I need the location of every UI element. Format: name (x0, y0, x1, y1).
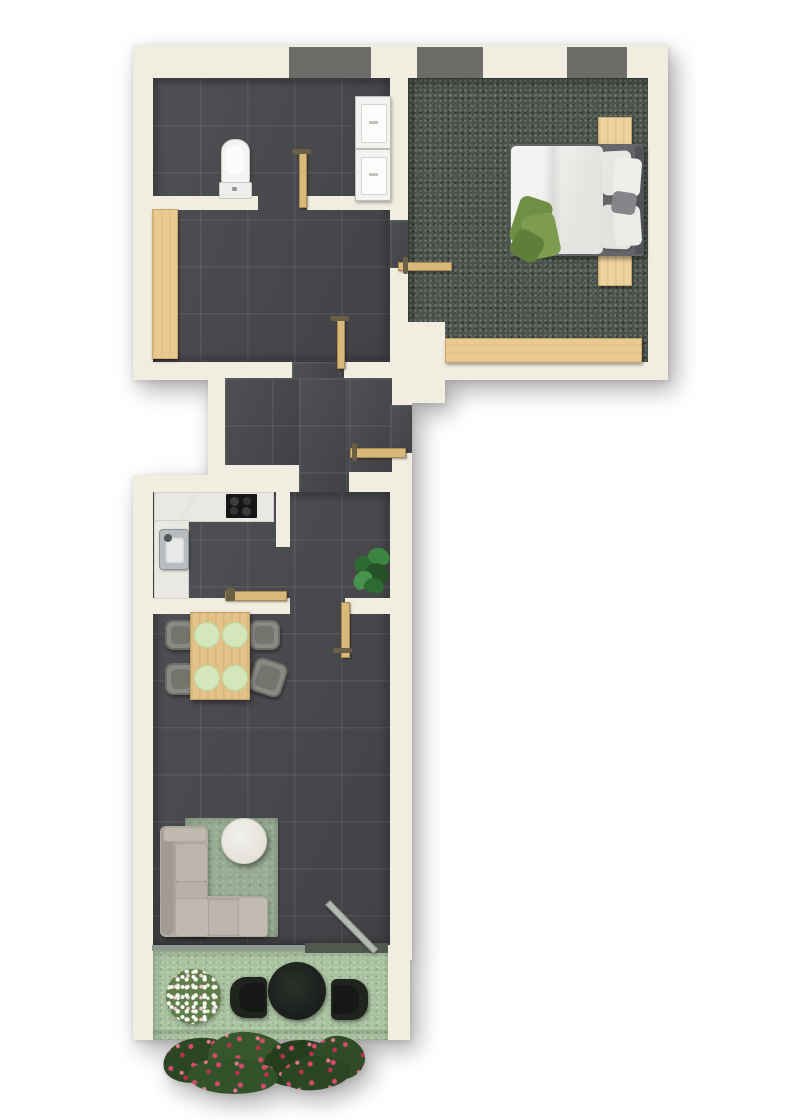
chair-seat (255, 626, 274, 644)
toilet-flush-button (232, 187, 237, 191)
sofa-cushion (208, 899, 239, 936)
hallway-door-handle (330, 316, 349, 321)
dining-wall-right (345, 598, 412, 614)
chair-seat (171, 669, 190, 689)
sofa-corner-cushion (175, 898, 209, 937)
chair-seat (239, 983, 265, 1012)
kitchen-door-handle (226, 588, 235, 601)
outdoor-chair-right (331, 979, 368, 1020)
kitchen-wall-stub (276, 492, 290, 547)
corridor-floor-left (225, 378, 299, 465)
burner (243, 497, 251, 505)
sofa-armrest (163, 827, 207, 842)
faucet (164, 534, 172, 542)
dryer-lid (361, 157, 387, 195)
outdoor-table (268, 962, 326, 1020)
coffee-table (221, 818, 267, 864)
floor-plan-canvas (0, 0, 800, 1120)
hallway-wardrobe (152, 209, 178, 359)
kitchen-sink (159, 529, 189, 570)
dryer-latch (369, 173, 378, 176)
burner (242, 507, 251, 516)
flower-hedge (163, 1032, 367, 1098)
bedroom-wall-step (408, 322, 445, 403)
place-setting (194, 622, 220, 648)
burner (230, 507, 238, 515)
dining-chair (249, 620, 280, 650)
double-bed (510, 144, 644, 256)
place-setting (222, 665, 248, 691)
bathroom-door-leaf (299, 152, 307, 208)
sofa-backrest (161, 827, 174, 935)
window-bedroom-left (417, 47, 483, 78)
washer-latch (369, 121, 378, 124)
corridor-floor-center (299, 378, 349, 495)
living-room-door-handle (333, 648, 352, 653)
place-setting (222, 622, 248, 648)
cooktop (226, 494, 257, 518)
bedroom-wardrobe-bench (445, 338, 642, 363)
burner (230, 497, 239, 506)
washer (355, 96, 391, 149)
chair-seat (333, 985, 359, 1014)
chair-seat (171, 626, 190, 644)
potted-plant (352, 546, 392, 594)
outdoor-chair-left (230, 977, 267, 1018)
sofa-chaise-cushion (238, 897, 268, 937)
window-bedroom-right (567, 47, 627, 78)
dryer (355, 149, 391, 201)
bedroom-door-handle (403, 257, 408, 274)
toilet-seat (225, 145, 244, 175)
sofa-cushion (175, 843, 208, 882)
flowering-bush (166, 969, 221, 1024)
entry-doorway-floor (390, 405, 412, 453)
nightstand-bottom (598, 252, 632, 286)
place-setting (194, 665, 220, 691)
hallway-door-leaf (337, 319, 345, 369)
bathroom-door-handle (292, 149, 311, 154)
glass-wall (152, 945, 305, 951)
window-bathroom (289, 47, 371, 78)
toilet (219, 139, 250, 198)
apartment-plan (0, 0, 800, 1120)
chair-seat (254, 663, 282, 692)
accent-pillow (611, 190, 638, 215)
entry-door-leaf (350, 448, 406, 458)
entry-door-handle (352, 443, 357, 461)
